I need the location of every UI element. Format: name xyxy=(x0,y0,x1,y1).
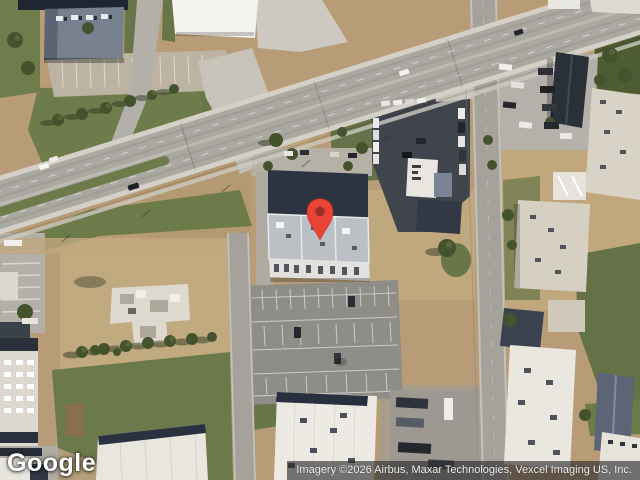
map-viewport[interactable]: Google Imagery ©2026 Airbus, Maxar Techn… xyxy=(0,0,640,480)
imagery-attribution-text: Imagery ©2026 Airbus, Maxar Technologies… xyxy=(296,461,632,480)
satellite-imagery[interactable] xyxy=(0,0,640,480)
map-pin-dot xyxy=(315,207,325,217)
google-logo[interactable]: Google xyxy=(7,449,96,478)
imagery-attribution: Imagery ©2026 Airbus, Maxar Technologies… xyxy=(287,461,640,480)
